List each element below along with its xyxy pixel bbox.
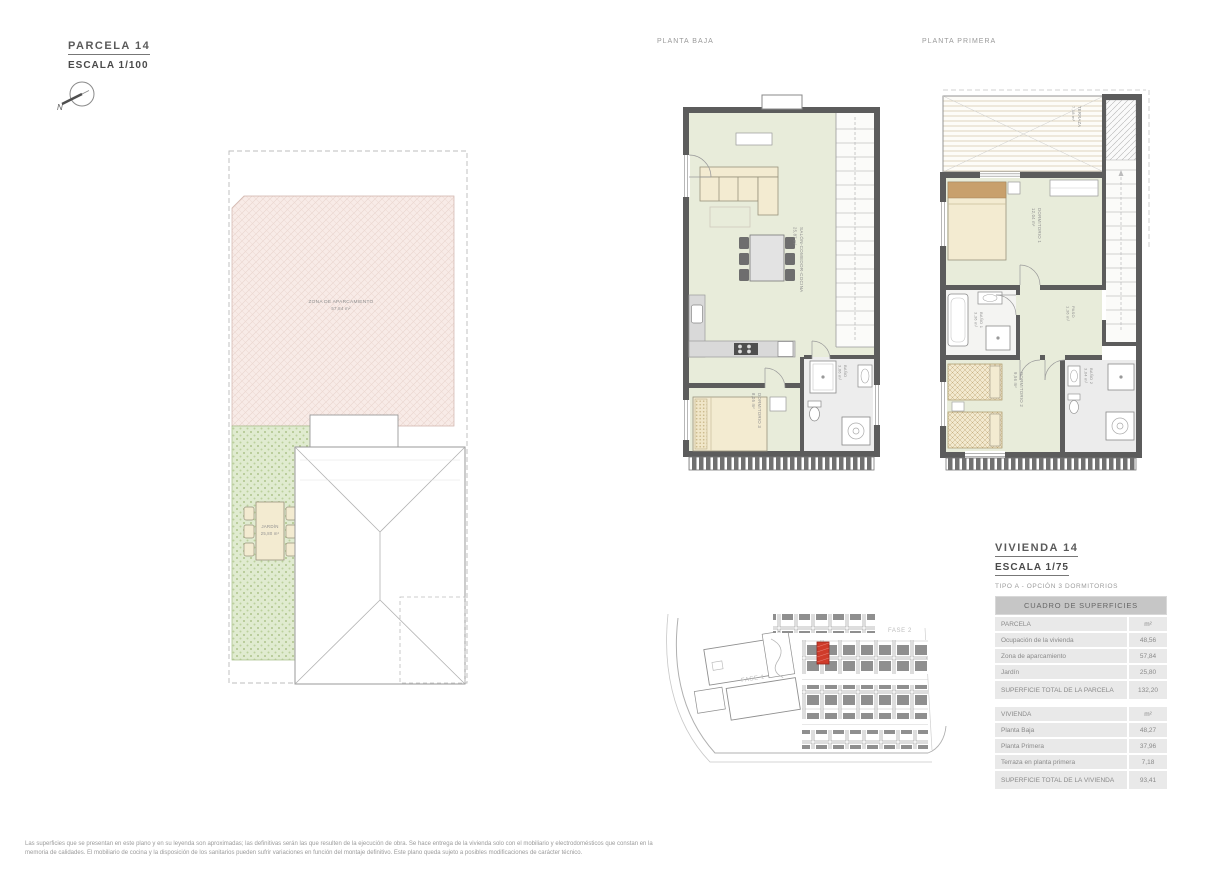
fase2-label: FASE 2 <box>888 628 912 634</box>
bano1-label: BAÑO 1 3,36 m² <box>974 312 985 329</box>
site-plan: ZONA DE APARCAMIENTO 57,84 m² JARDÍN 25,… <box>228 150 468 685</box>
table-row: Planta Baja 48,27 <box>995 723 1167 737</box>
svg-text:9,56 m²: 9,56 m² <box>1013 372 1018 388</box>
washer-icon <box>842 417 870 445</box>
vivienda-title: VIVIENDA 14 <box>995 542 1078 557</box>
location-map: FASE 1 FASE 2 <box>660 590 950 770</box>
washbasin-icon <box>858 365 872 387</box>
footer-disclaimer: Las superficies que se presentan en este… <box>25 840 665 859</box>
vivienda-header: VIVIENDA 14 ESCALA 1/75 TIPO A - OPCIÓN … <box>995 538 1118 590</box>
map-house-row-2 <box>802 685 928 719</box>
table-row: Ocupación de la vivienda 48,56 <box>995 633 1167 647</box>
svg-text:7,18 m²: 7,18 m² <box>1071 106 1076 122</box>
row-value: 48,27 <box>1129 723 1167 737</box>
svg-text:BAÑO 1: BAÑO 1 <box>979 312 984 329</box>
row-label: Jardín <box>995 665 1127 679</box>
svg-text:3,04 m²: 3,04 m² <box>1084 368 1089 384</box>
vivienda-scale: ESCALA 1/75 <box>995 562 1069 576</box>
row-label: Planta Baja <box>995 723 1127 737</box>
bano2-label: BAÑO 2 3,04 m² <box>1084 368 1095 385</box>
nightstand-icon <box>1008 182 1020 194</box>
plan-sheet: PARCELA 14 ESCALA 1/100 N PLANTA BAJA PL… <box>0 0 1220 870</box>
row-label: Ocupación de la vivienda <box>995 633 1127 647</box>
planta-primera-label: PLANTA PRIMERA <box>922 38 996 45</box>
row-label: SUPERFICIE TOTAL DE LA PARCELA <box>995 681 1127 699</box>
pb-porch <box>689 457 874 470</box>
row-value: 37,96 <box>1129 739 1167 753</box>
planta-primera-plan: TERRAZA 7,18 m² <box>920 80 1152 475</box>
table-row: Jardín 25,80 <box>995 665 1167 679</box>
row-value: m² <box>1129 617 1167 631</box>
sideboard-icon <box>736 133 772 145</box>
svg-text:DORMITORIO 3: DORMITORIO 3 <box>757 393 762 428</box>
parcela-scale: ESCALA 1/100 <box>68 60 149 73</box>
svg-text:1,36 m²: 1,36 m² <box>1066 306 1071 322</box>
svg-text:3,36 m²: 3,36 m² <box>974 312 979 328</box>
row-value: 132,20 <box>1129 681 1167 699</box>
svg-text:BAÑO 2: BAÑO 2 <box>1089 368 1094 385</box>
row-label: PARCELA <box>995 617 1127 631</box>
parcela-title: PARCELA 14 <box>68 40 150 55</box>
surfaces-table-title: CUADRO DE SUPERFICIES <box>995 596 1167 615</box>
roof-plan <box>295 415 465 684</box>
svg-text:25,80 m²: 25,80 m² <box>261 531 280 536</box>
table-row-vivienda-header: VIVIENDA m² <box>995 707 1167 721</box>
svg-text:57,84 m²: 57,84 m² <box>331 306 351 311</box>
svg-text:TERRAZA: TERRAZA <box>1077 106 1082 127</box>
svg-text:3,66 m²: 3,66 m² <box>838 365 843 381</box>
row-label: SUPERFICIE TOTAL DE LA VIVIENDA <box>995 771 1127 789</box>
fridge-icon <box>778 342 793 357</box>
row-value: 25,80 <box>1129 665 1167 679</box>
table-row: Terraza en planta primera 7,18 <box>995 755 1167 769</box>
svg-text:25,87 m²: 25,87 m² <box>793 227 798 246</box>
parcela-header: PARCELA 14 ESCALA 1/100 <box>68 36 150 73</box>
surfaces-table: CUADRO DE SUPERFICIES PARCELA m² Ocupaci… <box>995 596 1167 789</box>
highlighted-unit <box>817 642 829 664</box>
map-house-row-top <box>773 614 875 633</box>
svg-text:8,05 m²: 8,05 m² <box>751 393 756 409</box>
svg-text:N: N <box>57 103 63 112</box>
north-arrow-icon: N <box>56 78 106 120</box>
svg-text:DORMITORIO 1: DORMITORIO 1 <box>1037 208 1042 243</box>
row-value: 7,18 <box>1129 755 1167 769</box>
row-value: 57,84 <box>1129 649 1167 663</box>
planta-baja-plan: SALÓN-COMEDOR-COCINA 25,87 m² DORMITORIO… <box>650 85 910 475</box>
svg-text:JARDÍN: JARDÍN <box>261 524 278 529</box>
svg-text:ZONA DE APARCAMIENTO: ZONA DE APARCAMIENTO <box>308 299 373 305</box>
row-label: Terraza en planta primera <box>995 755 1127 769</box>
row-label: Zona de aparcamiento <box>995 649 1127 663</box>
shower-icon <box>810 361 836 393</box>
map-house-row-3 <box>802 730 928 749</box>
table-row-total-vivienda: SUPERFICIE TOTAL DE LA VIVIENDA 93,41 <box>995 771 1167 789</box>
planta-baja-label: PLANTA BAJA <box>657 38 714 45</box>
dining-set-icon <box>739 235 795 281</box>
svg-text:12,04 m²: 12,04 m² <box>1031 208 1036 227</box>
table-row: Zona de aparcamiento 57,84 <box>995 649 1167 663</box>
row-value: m² <box>1129 707 1167 721</box>
parking-zone: ZONA DE APARCAMIENTO 57,84 m² <box>232 196 454 426</box>
svg-text:BAÑO: BAÑO <box>843 365 848 377</box>
sink-icon <box>692 305 703 323</box>
row-label: Planta Primera <box>995 739 1127 753</box>
wardrobe-icon <box>770 397 786 411</box>
row-value: 48,56 <box>1129 633 1167 647</box>
pp-porch <box>946 458 1136 470</box>
table-row: Planta Primera 37,96 <box>995 739 1167 753</box>
table-row-total-parcela: SUPERFICIE TOTAL DE LA PARCELA 132,20 <box>995 681 1167 699</box>
pb-chimney <box>762 95 802 109</box>
row-value: 93,41 <box>1129 771 1167 789</box>
bed1-icon <box>948 182 1006 260</box>
svg-text:SALÓN-COMEDOR-COCINA: SALÓN-COMEDOR-COCINA <box>799 227 805 293</box>
stove-icon <box>734 343 758 355</box>
table-row-parcela-header: PARCELA m² <box>995 617 1167 631</box>
row-label: VIVIENDA <box>995 707 1127 721</box>
svg-text:PASO: PASO <box>1071 306 1076 318</box>
vivienda-tipo: TIPO A - OPCIÓN 3 DORMITORIOS <box>995 583 1118 590</box>
